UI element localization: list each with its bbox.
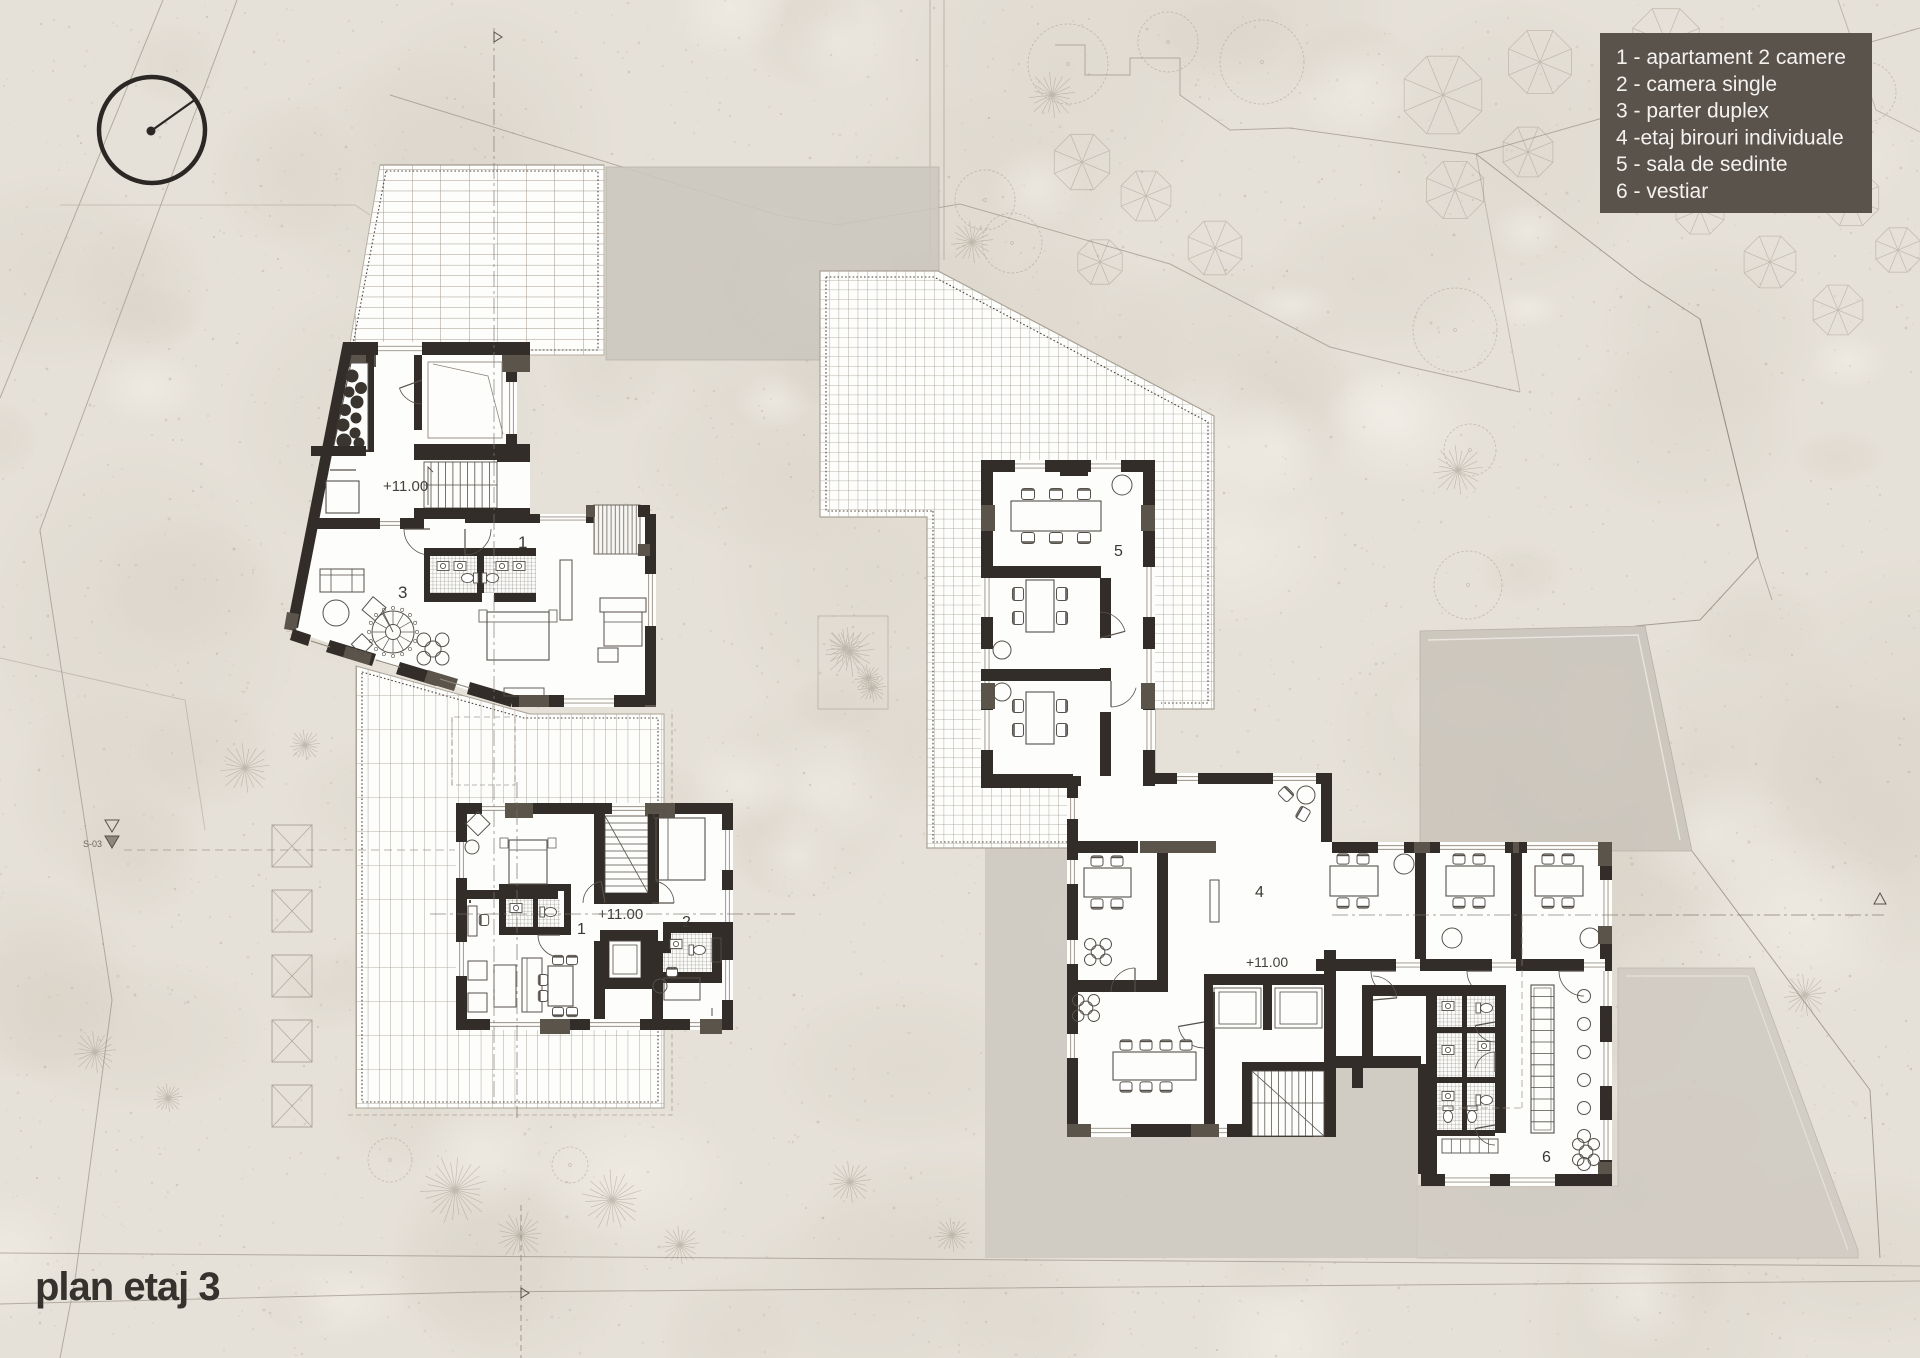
svg-text:6: 6 — [1542, 1149, 1551, 1166]
svg-text:6 - vestiar: 6 - vestiar — [1616, 180, 1708, 203]
svg-text:2 - camera single: 2 - camera single — [1616, 73, 1777, 96]
svg-text:S-03: S-03 — [83, 839, 102, 849]
svg-text:4 -etaj birouri individuale: 4 -etaj birouri individuale — [1616, 126, 1844, 149]
svg-text:1 - apartament 2 camere: 1 - apartament 2 camere — [1616, 46, 1846, 69]
svg-text:3 - parter duplex: 3 - parter duplex — [1616, 100, 1769, 123]
svg-text:1: 1 — [577, 921, 586, 938]
svg-text:4: 4 — [1255, 884, 1264, 901]
svg-text:1: 1 — [518, 533, 527, 552]
svg-text:5: 5 — [1114, 543, 1123, 560]
svg-text:+11.00: +11.00 — [598, 906, 643, 923]
svg-text:+11.00: +11.00 — [1246, 954, 1288, 970]
svg-text:+11.00: +11.00 — [383, 478, 428, 495]
svg-text:2: 2 — [682, 914, 691, 931]
svg-text:5 - sala de sedinte: 5 - sala de sedinte — [1616, 153, 1788, 176]
svg-text:3: 3 — [398, 583, 407, 602]
svg-text:plan etaj 3: plan etaj 3 — [35, 1265, 220, 1309]
